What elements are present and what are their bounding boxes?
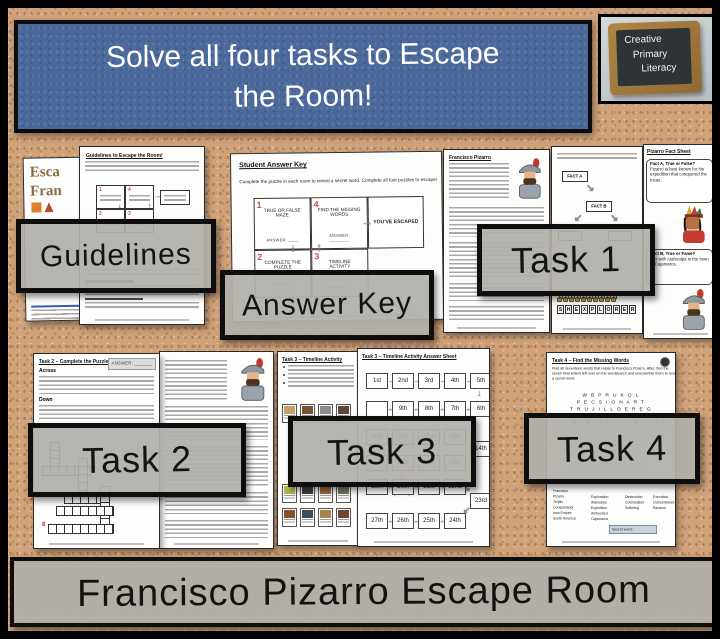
paragraph-placeholder bbox=[100, 195, 121, 203]
ordinal-box: 23rd bbox=[470, 493, 490, 509]
paragraph-placeholder bbox=[557, 153, 637, 161]
fact-a-box: FACT A bbox=[562, 171, 588, 182]
word-list-item: Destruction bbox=[625, 495, 644, 501]
letter-tile: R bbox=[613, 305, 620, 314]
banner-label: Francisco Pizarro Escape Room bbox=[77, 568, 651, 615]
clue-list-placeholder bbox=[39, 405, 154, 420]
lock-icon bbox=[569, 297, 574, 302]
footer-line bbox=[653, 333, 709, 335]
crossword-run bbox=[56, 506, 114, 516]
lock-icon bbox=[611, 297, 616, 302]
task2-banner: Task 2 bbox=[28, 423, 246, 497]
step-label: COMPLETE THE PUZZLE bbox=[261, 260, 304, 270]
speech-bubble: Fact A, True or False? Pizarro is best k… bbox=[646, 159, 713, 203]
footer-line bbox=[562, 541, 659, 543]
cork-board: Solve all four tasks to Escape the Room!… bbox=[0, 0, 720, 639]
title-line-1: Solve all four tasks to Escape bbox=[106, 34, 500, 79]
chalkboard-text: Creative Primary Literacy bbox=[616, 28, 692, 87]
flow-cell-escaped: YOU'VE ESCAPED bbox=[368, 196, 425, 249]
lock-icon bbox=[587, 297, 592, 302]
step-number: 4 bbox=[128, 187, 131, 193]
banner-label: Task 1 bbox=[511, 238, 622, 282]
word-list-item: Exploration bbox=[591, 495, 608, 501]
footer-line bbox=[49, 543, 144, 545]
guidelines-banner: Guidelines bbox=[16, 219, 216, 293]
word-list-column: ExecutionOutnumberedRansom bbox=[653, 495, 674, 512]
page-title: Student Answer Key bbox=[239, 160, 433, 169]
paragraph-placeholder bbox=[164, 195, 186, 201]
paragraph-placeholder bbox=[85, 161, 199, 173]
letter-tile: R bbox=[629, 305, 636, 314]
cover-image-thumb bbox=[31, 202, 41, 212]
arrow-right-icon: → bbox=[154, 193, 161, 200]
task1-banner: Task 1 bbox=[477, 224, 655, 296]
timeline-card bbox=[282, 508, 297, 527]
speech-bubble: Fact B, True or False? met with Atahualp… bbox=[646, 249, 713, 285]
word-list-item: South America bbox=[553, 517, 576, 523]
step-label: FIND THE MISSING WORDS bbox=[318, 208, 361, 218]
letter-tile-row: SHEXPLORER bbox=[557, 305, 636, 314]
step-label: TRUE OR FALSE MAZE bbox=[261, 208, 304, 218]
wordsearch-row: W B P R U K O L bbox=[559, 393, 664, 399]
conquistador-illustration bbox=[676, 289, 710, 331]
arrow-right-icon: → bbox=[361, 215, 373, 229]
word-list-column: FranciscoPizarroTrujilloConquistadorInca… bbox=[553, 489, 576, 522]
word-list-item: Cajamarca bbox=[591, 517, 608, 523]
ordinal-box: 5th bbox=[470, 373, 490, 389]
secret-word-box: Secret word: bbox=[609, 525, 657, 534]
page-title: Guidelines to Escape the Room! bbox=[86, 153, 198, 159]
lock-icon bbox=[563, 297, 568, 302]
task3-banner: Task 3 bbox=[288, 416, 476, 487]
flow-cell-escaped bbox=[160, 190, 190, 205]
footer-line bbox=[288, 540, 349, 542]
page-title: Task 3 – Timeline Activity bbox=[282, 357, 354, 363]
arrow-down-icon: ↓ bbox=[118, 203, 122, 210]
step-number: 1 bbox=[99, 187, 102, 193]
arrow-down-left-icon: ↙ bbox=[574, 213, 582, 224]
answer-label: ANSWER: _______ bbox=[111, 362, 152, 366]
red-clue-number: 8 bbox=[42, 522, 45, 528]
letter-tile: H bbox=[565, 305, 572, 314]
letter-tile: S bbox=[557, 305, 564, 314]
ordinal-box: 8th bbox=[418, 401, 440, 417]
arrow-down-icon: ↓ bbox=[477, 388, 482, 398]
bullet-placeholder bbox=[288, 373, 354, 379]
lock-icon bbox=[599, 297, 604, 302]
cover-link-placeholder bbox=[31, 304, 86, 308]
lock-icon bbox=[581, 297, 586, 302]
ordinal-box bbox=[366, 401, 388, 417]
fact-text: met with Atahualpa in the town of Cajama… bbox=[650, 257, 709, 268]
instruction-text: Find all seventeen words that relate to … bbox=[552, 367, 676, 382]
letter-tile: X bbox=[581, 305, 588, 314]
banner-label: Answer Key bbox=[242, 287, 413, 324]
chalkboard-slate: Creative Primary Literacy bbox=[608, 20, 702, 95]
brand-logo-photo: Creative Primary Literacy bbox=[598, 14, 720, 104]
letter-tile: P bbox=[589, 305, 596, 314]
arrow-up-icon: ↑ bbox=[148, 203, 152, 210]
page-title: Task 4 – Find the Missing Words bbox=[552, 358, 670, 364]
fact-a-label: FACT A bbox=[567, 174, 582, 178]
logo-line: Literacy bbox=[641, 61, 691, 77]
letter-tile: E bbox=[573, 305, 580, 314]
padlock-row bbox=[557, 297, 616, 302]
footer-line bbox=[457, 327, 537, 329]
ordinal-box: 25th bbox=[418, 513, 440, 529]
arrow-down-icon: ↓ bbox=[290, 241, 296, 255]
lock-icon bbox=[575, 297, 580, 302]
ordinal-box: 3rd bbox=[418, 373, 440, 389]
banner-label: Guidelines bbox=[40, 238, 192, 275]
escaped-label: YOU'VE ESCAPED bbox=[373, 219, 419, 225]
banner-label: Task 3 bbox=[327, 430, 438, 474]
answer-line: ANSWER: ________ bbox=[321, 234, 357, 242]
step-number: 2 bbox=[99, 211, 102, 217]
logo-badge-icon bbox=[660, 357, 670, 367]
footer-line bbox=[95, 319, 189, 321]
answer-box: ANSWER: _______ bbox=[108, 358, 156, 370]
product-title-banner: Francisco Pizarro Escape Room bbox=[10, 557, 718, 627]
conquistador-illustration bbox=[235, 358, 269, 402]
cover-image-thumb bbox=[44, 202, 53, 212]
letter-tile: L bbox=[597, 305, 604, 314]
letter-tile: E bbox=[621, 305, 628, 314]
fact-b-box: FACT B bbox=[586, 201, 612, 212]
timeline-card bbox=[336, 508, 351, 527]
ordinal-box: 4th bbox=[444, 373, 466, 389]
banner-label: Task 2 bbox=[82, 438, 193, 482]
secret-word-label: Secret word: bbox=[612, 528, 633, 532]
flow-cell: 1 TRUE OR FALSE MAZE ANSWER: ____ bbox=[254, 197, 312, 250]
lock-icon bbox=[557, 297, 562, 302]
footer-line bbox=[374, 541, 474, 543]
ordinal-box: 9th bbox=[392, 401, 414, 417]
bullet-placeholder bbox=[288, 365, 354, 371]
wordsearch-row: T R U J I L L O E R E G bbox=[559, 407, 664, 413]
banner-label: Task 4 bbox=[557, 427, 668, 471]
arrow-down-right-icon: ↘ bbox=[586, 183, 594, 194]
paragraph-placeholder bbox=[449, 163, 509, 201]
timeline-card bbox=[300, 508, 315, 527]
ordinal-box: 2nd bbox=[392, 373, 414, 389]
arrow-down-right-icon: ↘ bbox=[610, 213, 618, 224]
ordinal-box: 6th bbox=[470, 401, 490, 417]
footer-line bbox=[563, 328, 631, 330]
paragraph-placeholder bbox=[85, 302, 199, 310]
instruction-text: Complete the puzzle in each room to reve… bbox=[239, 178, 437, 185]
fact-b-label: FACT B bbox=[591, 204, 606, 208]
ordinal-box: 7th bbox=[444, 401, 466, 417]
ordinal-box: 26th bbox=[392, 513, 414, 529]
word-list-item: Suffering bbox=[625, 506, 644, 512]
paragraph-placeholder bbox=[449, 306, 544, 322]
ordinal-box: 1st bbox=[366, 373, 388, 389]
arrow-up-icon: ↑ bbox=[316, 240, 322, 254]
crossword-run bbox=[48, 524, 114, 534]
word-list-item: Ransom bbox=[653, 506, 674, 512]
clue-list-placeholder bbox=[39, 376, 154, 394]
bullet-placeholder bbox=[288, 381, 354, 387]
paragraph-placeholder bbox=[165, 520, 268, 538]
title-line-2: the Room! bbox=[234, 76, 373, 118]
paragraph-placeholder bbox=[129, 195, 150, 203]
paragraph-placeholder bbox=[165, 360, 227, 400]
footer-line bbox=[174, 543, 260, 545]
ordinal-box: 27th bbox=[366, 513, 388, 529]
step-number: 3 bbox=[128, 211, 131, 217]
conquistador-illustration bbox=[513, 158, 545, 200]
word-list-column: ExplorationAtahualpaExpeditionAmbushedCa… bbox=[591, 495, 608, 523]
down-heading: Down bbox=[39, 397, 154, 403]
title-banner: Solve all four tasks to Escape the Room! bbox=[14, 20, 592, 133]
lock-icon bbox=[605, 297, 610, 302]
section-heading-placeholder bbox=[85, 298, 143, 301]
answer-key-banner: Answer Key bbox=[220, 270, 434, 340]
lock-icon bbox=[593, 297, 598, 302]
inca-illustration bbox=[674, 205, 710, 245]
ordinal-box: 24th bbox=[444, 513, 466, 529]
word-list-column: DestructionColonizationSuffering bbox=[625, 495, 644, 512]
page-title: Pizarro Fact Sheet bbox=[647, 149, 714, 155]
fact-text: Pizarro is best known for his expedition… bbox=[650, 167, 709, 183]
timeline-card bbox=[318, 508, 333, 527]
task4-banner: Task 4 bbox=[524, 413, 700, 484]
step-label: TIMELINE ACTIVITY bbox=[318, 260, 361, 270]
wordsearch-row: P E C S I O N A R T bbox=[559, 400, 664, 406]
letter-tile: O bbox=[605, 305, 612, 314]
